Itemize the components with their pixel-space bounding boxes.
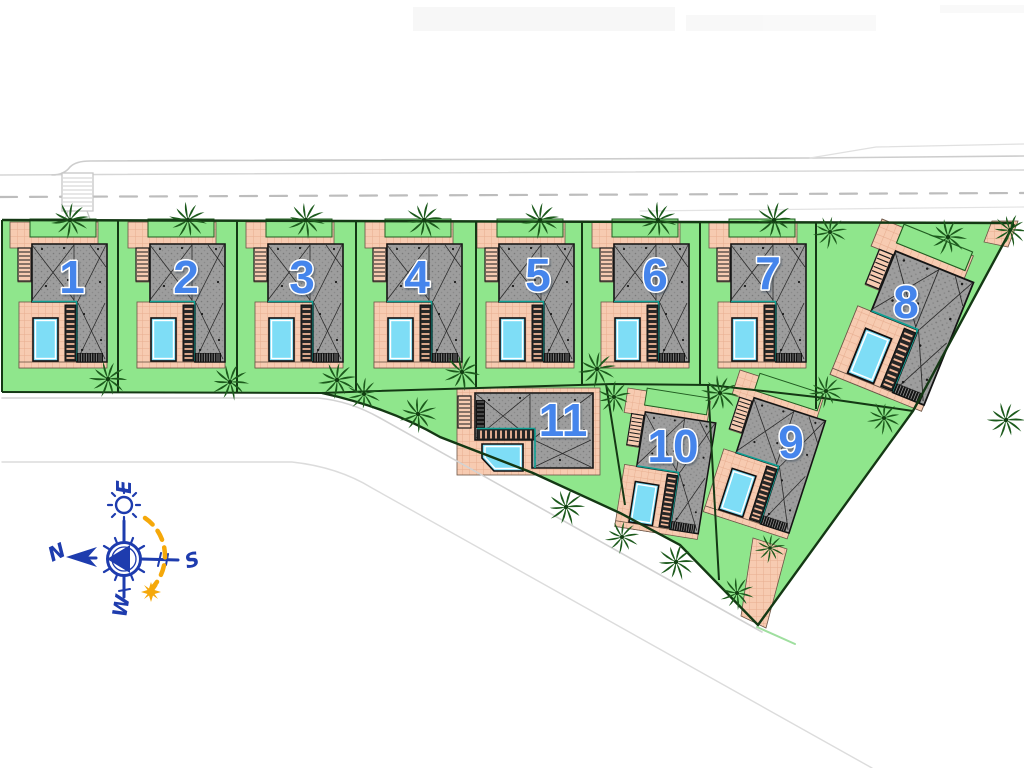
upper-road (0, 144, 1024, 219)
sun-path-arc (145, 518, 165, 588)
ghost-marks (413, 5, 1024, 31)
compass-label-south: S (182, 547, 202, 574)
site-plan-page: 1 2 3 4 5 6 7 8 9 10 11 N S E W (0, 0, 1024, 768)
plot-label-1: 1 (59, 251, 85, 303)
compass-label-west: W (107, 592, 135, 619)
green-edge-continuation (757, 627, 795, 644)
plot-label-10: 10 (647, 420, 698, 472)
plot-label-2: 2 (173, 251, 199, 303)
road-edge-faint (640, 207, 1024, 211)
road-centerline (0, 193, 1024, 197)
plot-label-7: 7 (755, 247, 781, 299)
sun-icon-blue (116, 497, 132, 513)
plot-label-9: 9 (778, 416, 804, 468)
compass-label-north: N (44, 538, 70, 567)
plot-label-5: 5 (525, 249, 551, 301)
plot-label-4: 4 (404, 251, 430, 303)
plot-label-3: 3 (289, 251, 315, 303)
plot-label-8: 8 (893, 276, 919, 328)
site-plan-canvas: 1 2 3 4 5 6 7 8 9 10 11 N S E W (0, 0, 1024, 768)
entry-steps (458, 396, 471, 428)
plot-label-11: 11 (539, 394, 588, 446)
compass-rose: N S E W (44, 480, 202, 619)
plot-label-6: 6 (642, 249, 668, 301)
road-edge-lower (0, 170, 1024, 175)
sun-icon-yellow (141, 582, 161, 602)
compass-label-east: E (112, 480, 136, 494)
compass-structure (76, 489, 178, 597)
